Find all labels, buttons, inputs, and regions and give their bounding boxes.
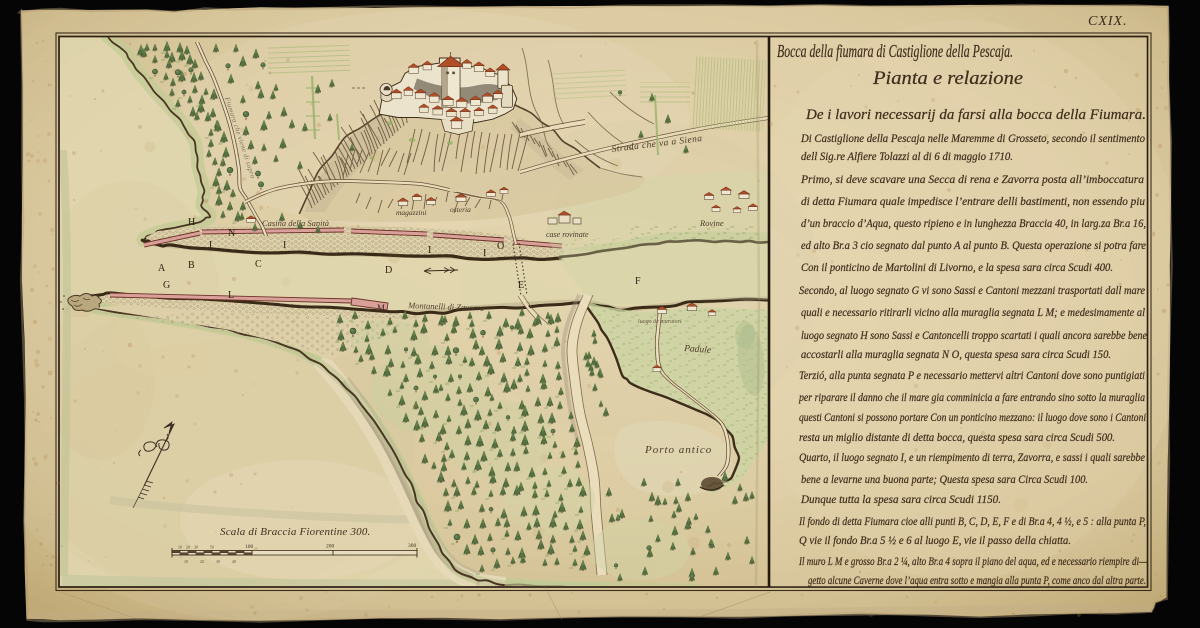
svg-text:O: O [497,241,504,252]
svg-text:30: 30 [216,559,220,564]
svg-text:accostarli alla muraglia segna: accostarli alla muraglia segnata N O, qu… [801,349,1111,361]
svg-text:I: I [428,245,431,256]
svg-text:luogo segnato H sono Sassi e C: luogo segnato H sono Sassi e Cantoncelli… [801,330,1147,342]
svg-text:C: C [255,259,262,270]
svg-text:N: N [228,228,235,239]
svg-text:Il fondo di detta Fiumara cioe: Il fondo di detta Fiumara cioe alli punt… [798,516,1146,528]
svg-text:resta un miglio distante di de: resta un miglio distante di detta bocca,… [799,432,1115,444]
svg-text:I: I [283,240,286,251]
svg-text:luogo de muratori: luogo de muratori [638,319,682,325]
svg-text:I: I [483,248,486,259]
svg-text:D: D [385,265,392,276]
svg-text:quali e necessario ritirarli v: quali e necessario ritirarli vicino alla… [801,307,1145,319]
svg-text:magazzini: magazzini [396,208,426,217]
svg-text:Pianta e relazione: Pianta e relazione [872,68,1023,89]
svg-text:Dunque tutta la spesa sara cir: Dunque tutta la spesa sara circa Scudi 1… [800,494,1001,506]
svg-text:E: E [518,280,524,291]
svg-text:CXIX.: CXIX. [1088,14,1128,29]
svg-text:De i lavori necessarij da fars: De i lavori necessarij da farsi alla boc… [805,107,1146,123]
svg-text:Scala di Braccia Fiorentine 30: Scala di Braccia Fiorentine 300. [220,526,371,538]
svg-text:20: 20 [200,559,204,564]
svg-text:B: B [188,260,195,271]
svg-text:L: L [228,290,234,301]
svg-text:case rovinate: case rovinate [546,230,589,239]
svg-text:getto alcune Caverne dove l’aq: getto alcune Caverne dove l’aqua entra s… [808,575,1146,587]
svg-text:F: F [635,276,641,287]
svg-text:20: 20 [186,545,190,550]
svg-text:A: A [158,263,166,274]
svg-text:Il muro L M e grosso Br.a 2 ¼,: Il muro L M e grosso Br.a 2 ¼, alto Br.a… [798,556,1147,568]
svg-text:bene a levarne una buona parte: bene a levarne una buona parte; Questa s… [801,474,1088,486]
svg-text:ed alto Br.a 3 cio segnato dal: ed alto Br.a 3 cio segnato dal punto A a… [801,240,1146,252]
svg-text:200: 200 [326,544,335,550]
svg-text:Porto antico: Porto antico [644,444,712,456]
svg-text:Q vie il fondo Br.a 5 ½ e 6 al: Q vie il fondo Br.a 5 ½ e 6 al luogo E, … [799,535,1071,547]
svg-text:40: 40 [232,559,236,564]
svg-text:Casina della Sanità: Casina della Sanità [262,218,329,228]
svg-text:50: 50 [210,545,214,550]
svg-text:Primo, si deve scavare una Sec: Primo, si deve scavare una Secca di rena… [800,172,1144,186]
svg-text:Terzió, alla punta segnata P e: Terzió, alla punta segnata P e necessari… [799,368,1145,382]
svg-text:Di Castiglione della Pescaja n: Di Castiglione della Pescaja nelle Marem… [800,133,1145,145]
svg-text:100: 100 [245,544,254,550]
svg-text:Rovine: Rovine [699,218,724,228]
svg-text:Con il ponticino de Martolini: Con il ponticino de Martolini di Livorno… [801,262,1113,274]
svg-text:dell Sig.re Alfiere Tolazzi al: dell Sig.re Alfiere Tolazzi al di 6 di m… [801,151,1013,163]
svg-text:10: 10 [184,559,188,564]
svg-text:J: J [208,240,212,251]
svg-text:Secondo, al luogo segnato G vi: Secondo, al luogo segnato G vi sono Sass… [799,283,1146,297]
svg-text:di detta Fiumara quale impedis: di detta Fiumara quale impedisce l’entra… [801,196,1145,208]
svg-text:Quarto, il luogo segnato I, e: Quarto, il luogo segnato I, e un riempim… [799,450,1146,464]
svg-text:M: M [377,303,385,313]
svg-text:30: 30 [194,545,198,550]
svg-text:10: 10 [178,545,182,550]
svg-text:G: G [163,280,170,291]
svg-text:Padule: Padule [683,344,712,356]
svg-text:300: 300 [408,543,417,549]
svg-text:Bocca della fiumara di Castigl: Bocca della fiumara di Castiglione della… [777,41,1013,61]
svg-text:questi Cantoni si possono port: questi Cantoni si possono portare Con un… [799,412,1146,424]
svg-text:osteria: osteria [450,205,471,214]
svg-text:d’un braccio d’Aqua, questo ri: d’un braccio d’Aqua, questo ripieno e in… [801,218,1146,230]
svg-text:H: H [188,217,195,228]
svg-text:per riparare il danno che il m: per riparare il danno che il mare gia co… [798,392,1145,404]
